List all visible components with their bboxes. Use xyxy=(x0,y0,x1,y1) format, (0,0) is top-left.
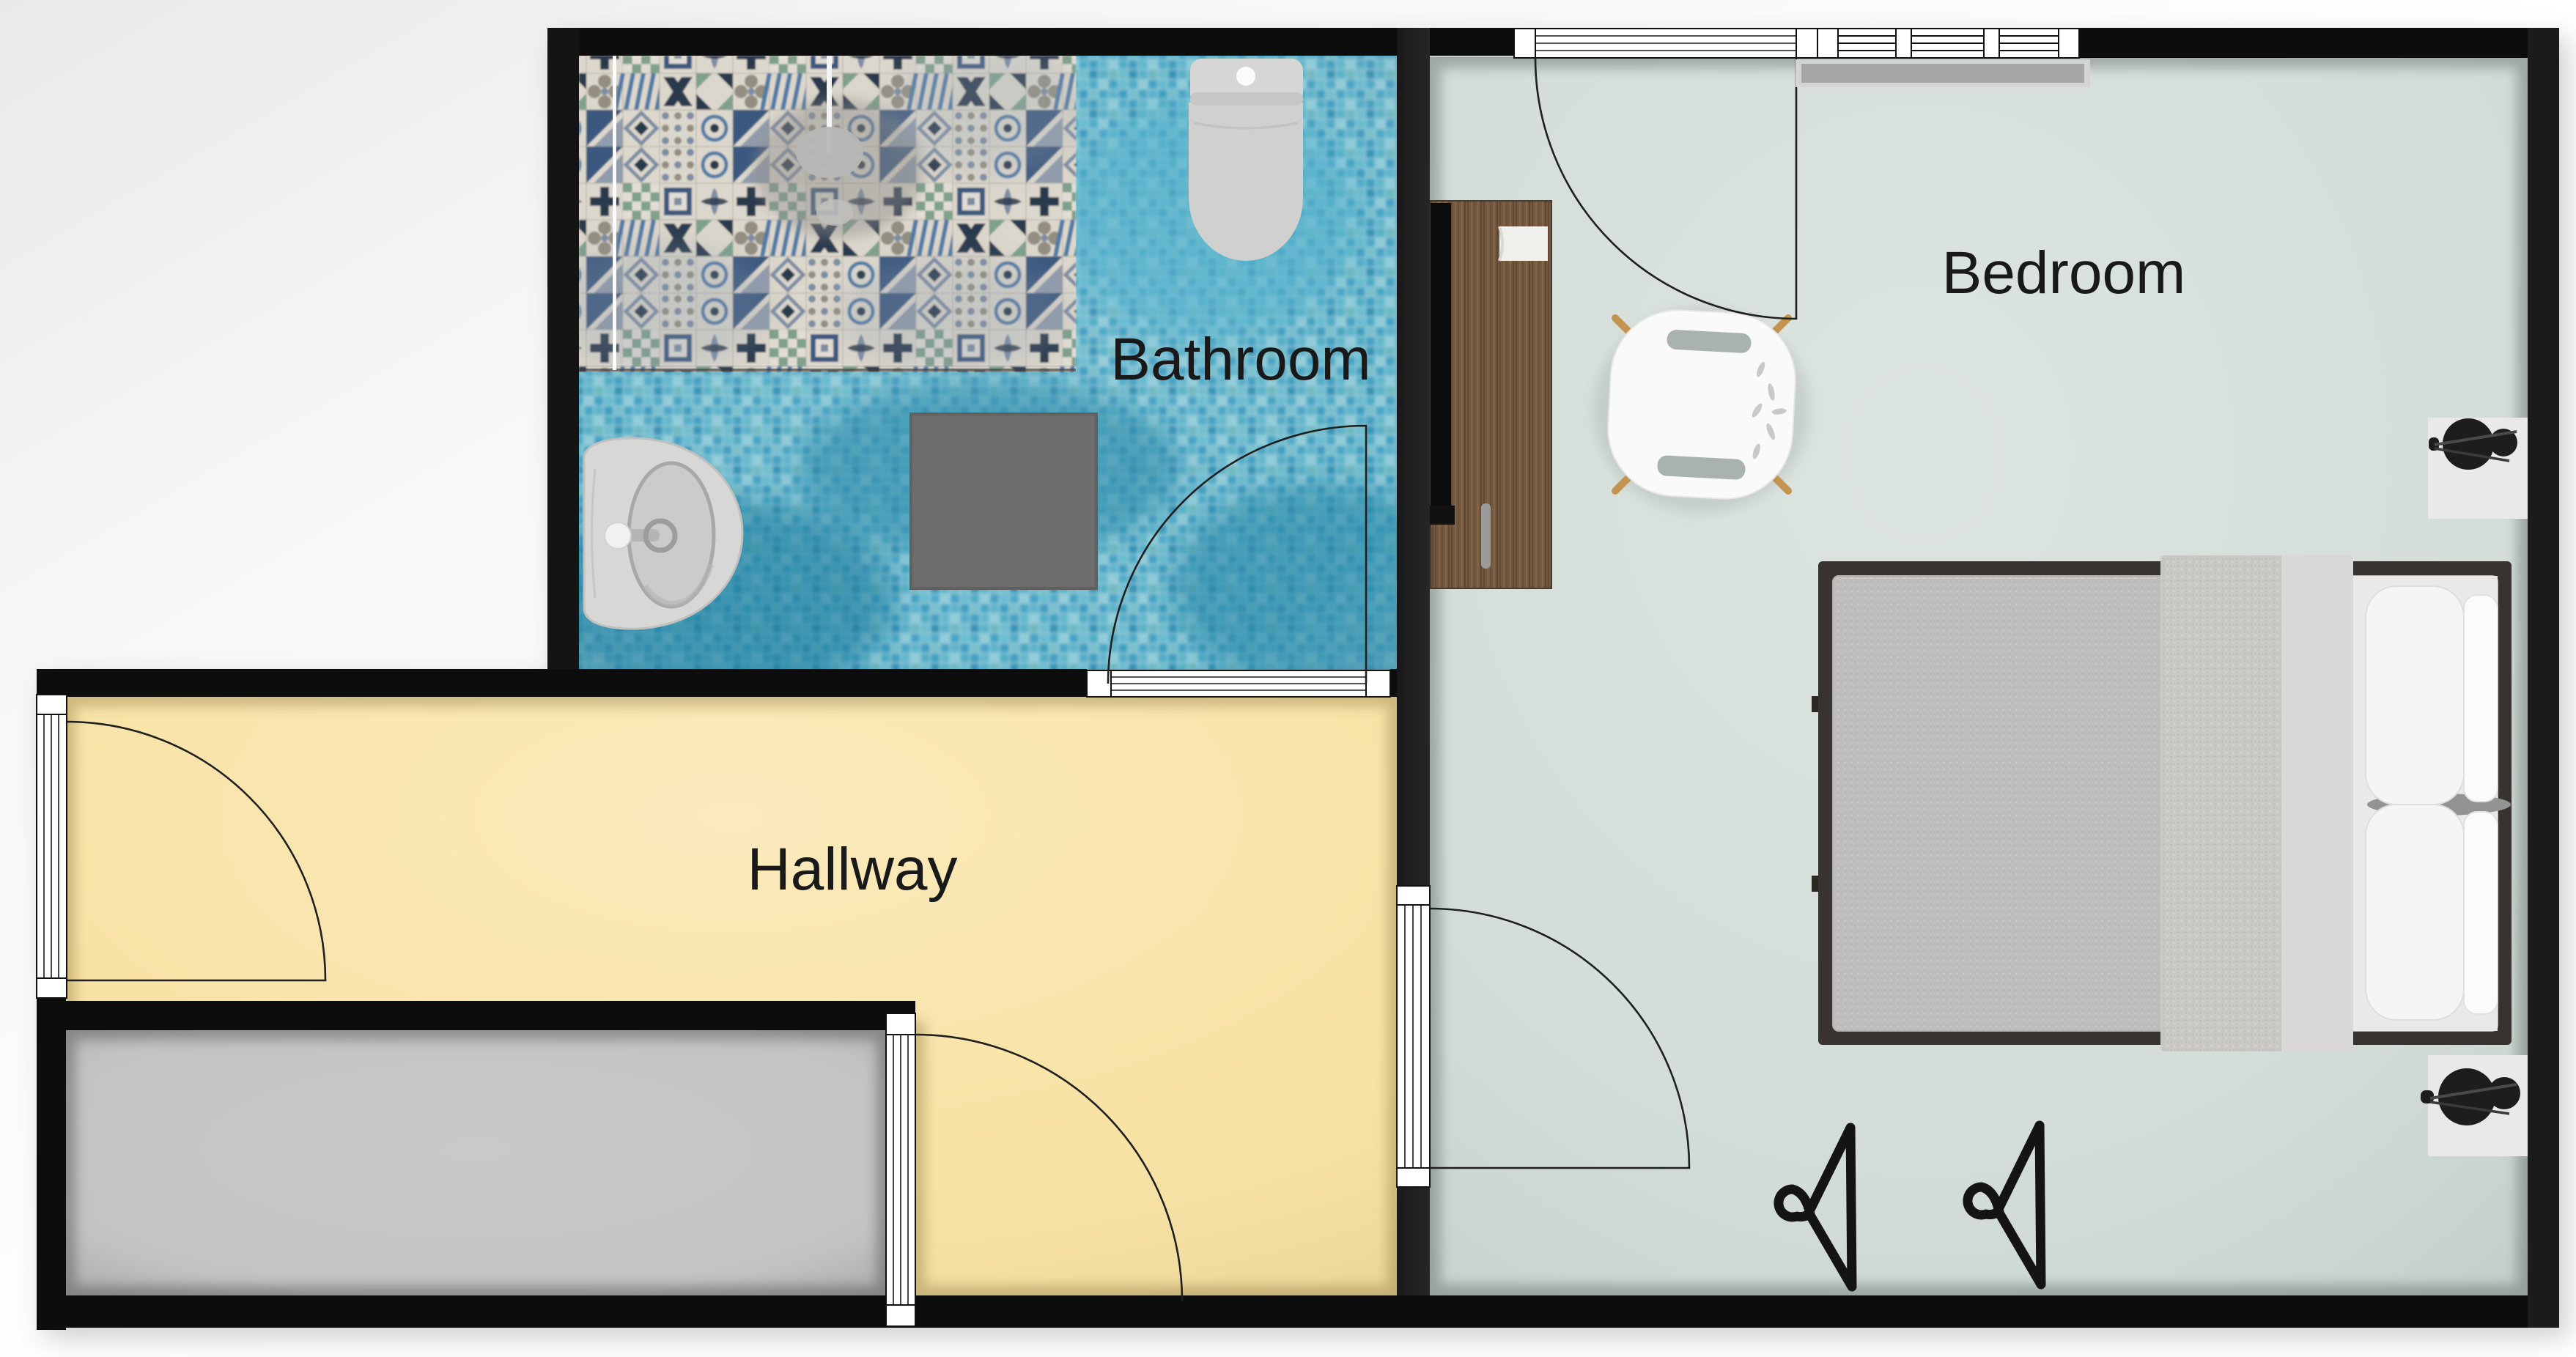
svg-text:Bedroom: Bedroom xyxy=(1942,240,2186,306)
svg-text:Bathroom: Bathroom xyxy=(1110,326,1371,393)
svg-text:Hallway: Hallway xyxy=(747,836,957,903)
